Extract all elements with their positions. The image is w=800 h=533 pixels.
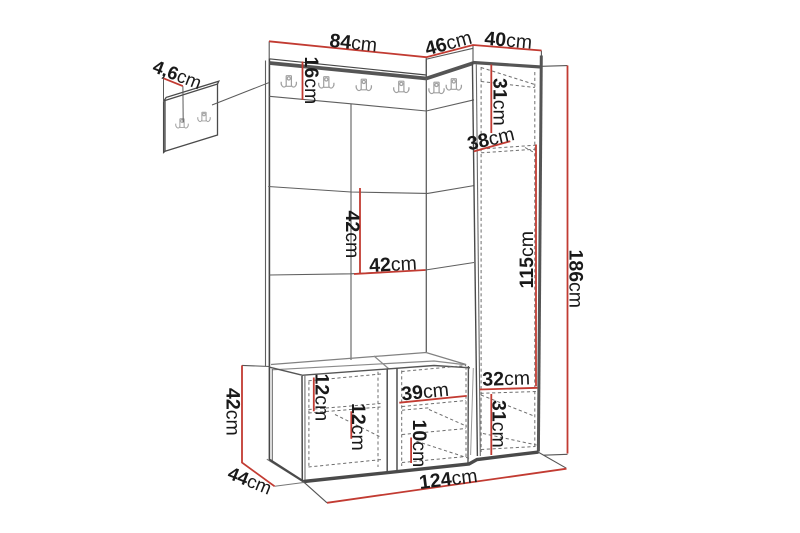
svg-text:16cm: 16cm <box>300 57 322 105</box>
svg-text:42cm: 42cm <box>222 388 244 436</box>
svg-text:42cm: 42cm <box>369 253 418 277</box>
svg-text:42cm: 42cm <box>341 211 363 259</box>
svg-text:40cm: 40cm <box>484 28 533 54</box>
svg-text:32cm: 32cm <box>482 367 530 390</box>
svg-text:31cm: 31cm <box>488 400 510 448</box>
svg-text:31cm: 31cm <box>489 78 511 126</box>
svg-text:10cm: 10cm <box>408 420 430 468</box>
svg-text:12cm: 12cm <box>347 403 369 451</box>
svg-text:12cm: 12cm <box>311 374 333 422</box>
svg-text:115cm: 115cm <box>516 231 538 288</box>
svg-text:186cm: 186cm <box>565 250 587 309</box>
